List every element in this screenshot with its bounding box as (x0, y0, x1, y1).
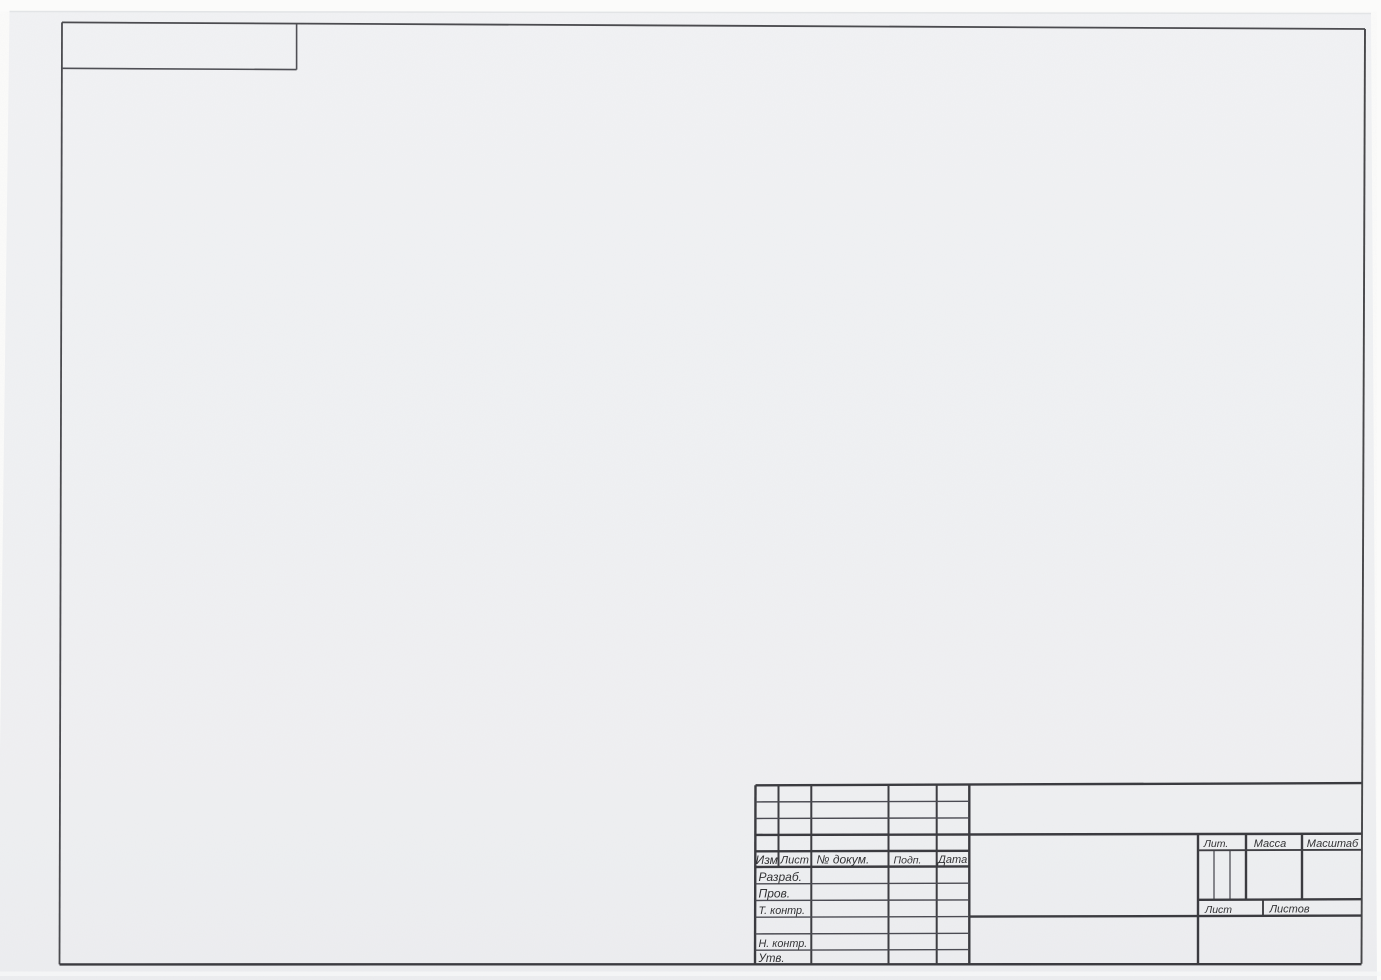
svg-text:Дата: Дата (936, 854, 967, 866)
svg-text:Масштаб: Масштаб (1307, 838, 1359, 850)
svg-text:Изм: Изм (756, 853, 778, 867)
svg-text:Т. контр.: Т. контр. (759, 905, 806, 917)
svg-text:Н. контр.: Н. контр. (759, 938, 808, 950)
svg-text:Утв.: Утв. (758, 953, 785, 965)
svg-text:Пров.: Пров. (759, 886, 791, 900)
svg-text:Разраб.: Разраб. (759, 870, 802, 884)
svg-text:Лист: Лист (1204, 904, 1232, 916)
svg-text:Масса: Масса (1254, 838, 1287, 850)
svg-text:№ докум.: № докум. (817, 853, 870, 867)
svg-text:Подп.: Подп. (894, 854, 922, 866)
svg-text:Листов: Листов (1269, 904, 1310, 916)
svg-text:Лит.: Лит. (1203, 838, 1229, 850)
svg-text:Лист: Лист (780, 855, 809, 867)
